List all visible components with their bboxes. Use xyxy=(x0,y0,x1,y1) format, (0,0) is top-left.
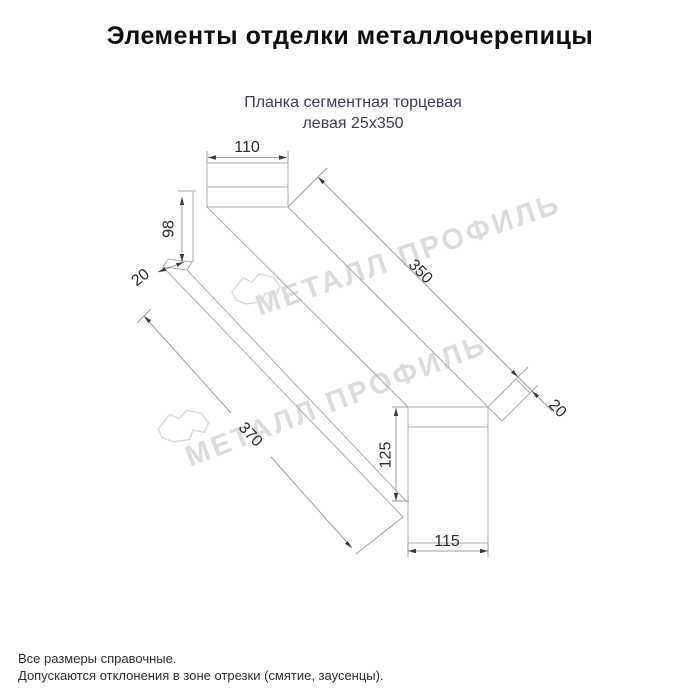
note-cutting-tolerance: Допускаются отклонения в зоне отрезки (с… xyxy=(18,667,384,684)
dim-near-height: 98 xyxy=(161,197,185,262)
dim-near-flange: 20 xyxy=(128,262,184,290)
dim-115-label: 115 xyxy=(434,533,460,550)
dim-top-width: 110 xyxy=(207,139,288,163)
dim-20-near-label: 20 xyxy=(128,266,153,290)
dim-98-label: 98 xyxy=(161,220,178,238)
watermark-text-middle: МЕТАЛЛ ПРОФИЛЬ xyxy=(181,329,492,474)
dim-far-flange: 20 xyxy=(518,377,570,421)
watermark-text-top: МЕТАЛЛ ПРОФИЛЬ xyxy=(252,188,566,323)
dim-far-width: 115 xyxy=(408,533,488,557)
far-end-view xyxy=(408,367,538,543)
technical-drawing: МЕТАЛЛ ПРОФИЛЬ МЕТАЛЛ ПРОФИЛЬ xyxy=(0,0,700,700)
dim-20-far-label: 20 xyxy=(545,396,570,421)
dim-125-label: 125 xyxy=(378,442,395,469)
notes: Все размеры справочные. Допускаются откл… xyxy=(18,650,384,684)
dim-110-label: 110 xyxy=(234,139,260,156)
drawing-sheet: Элементы отделки металлочерепицы Планка … xyxy=(0,0,700,700)
note-dimensions-reference: Все размеры справочные. xyxy=(18,650,384,667)
